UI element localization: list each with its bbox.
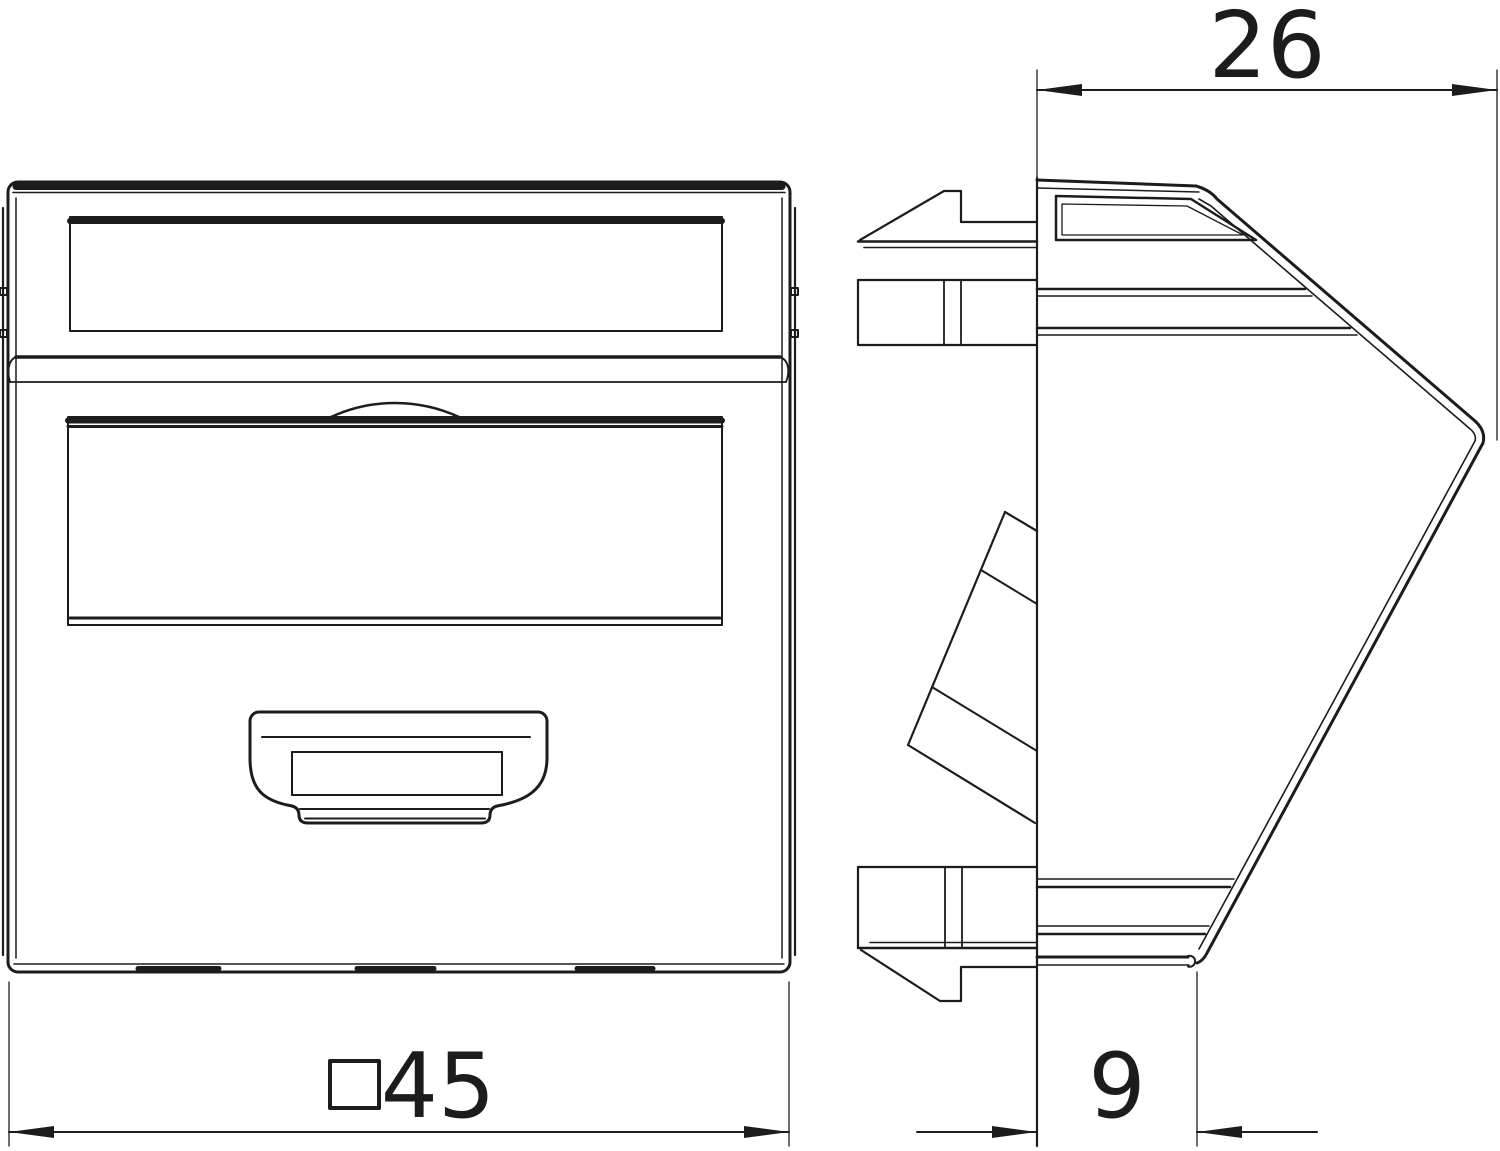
finger-lift-arc <box>331 403 459 417</box>
dim-label-26: 26 <box>1208 0 1325 99</box>
bottom-clip-block <box>858 867 1037 948</box>
top-claw-outline <box>860 191 1037 240</box>
cover-outer-profile <box>1196 186 1484 963</box>
side-top-edge-inner <box>1037 188 1199 192</box>
drawing-root: 26 45 9 <box>0 0 1497 1146</box>
flap-band-right-cap <box>780 357 788 382</box>
module-top-edge <box>1005 512 1037 531</box>
arrowhead-9-left <box>992 1126 1037 1138</box>
bottom-claw-outline <box>861 950 1037 1001</box>
arrowhead-26-left <box>1037 84 1082 96</box>
top-clip-block <box>858 280 1037 345</box>
drawing-canvas: 26 45 9 <box>0 0 1500 1151</box>
arrowhead-45-left <box>9 1126 54 1138</box>
dim-label-9: 9 <box>1088 1034 1145 1139</box>
cover-inner-profile <box>1199 199 1475 949</box>
arrowhead-45-right <box>744 1126 789 1138</box>
side-top-edge <box>1037 180 1196 186</box>
label-window <box>70 217 722 331</box>
flap-band-left-cap <box>8 357 16 382</box>
arrowhead-9-right <box>1197 1126 1242 1138</box>
technical-drawing: 26 45 9 <box>0 0 1500 1151</box>
main-window <box>68 417 722 625</box>
front-plate-outline <box>8 182 790 972</box>
module-bottom-edge <box>908 745 1035 823</box>
front-view <box>0 182 798 972</box>
side-label-recess-inner <box>1062 204 1243 235</box>
module-step-2 <box>932 687 1037 751</box>
dim-label-45: 45 <box>381 1034 496 1139</box>
square-symbol <box>330 1061 379 1108</box>
dimensions: 26 45 9 <box>9 0 1497 1146</box>
module-long-edge <box>908 512 1005 745</box>
module-step-1 <box>981 570 1037 604</box>
side-view <box>858 178 1484 1146</box>
arrowhead-26-right <box>1452 84 1497 96</box>
